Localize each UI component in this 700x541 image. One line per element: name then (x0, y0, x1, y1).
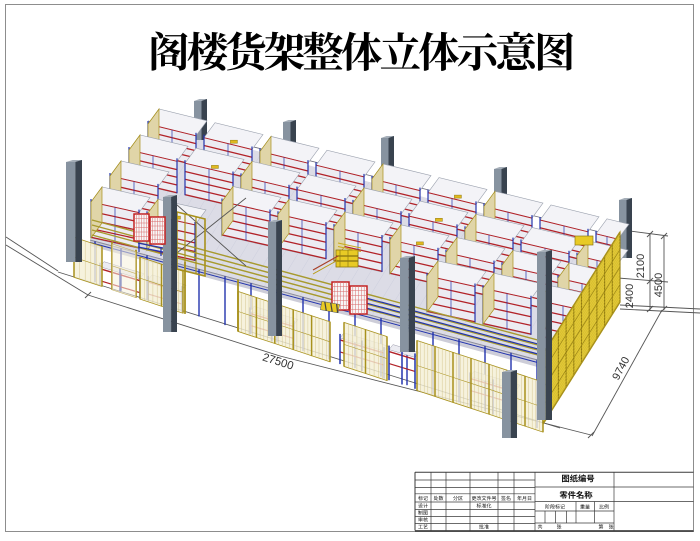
svg-text:4500: 4500 (653, 273, 665, 297)
svg-text:2400: 2400 (624, 284, 636, 308)
svg-text:2100: 2100 (635, 254, 647, 278)
